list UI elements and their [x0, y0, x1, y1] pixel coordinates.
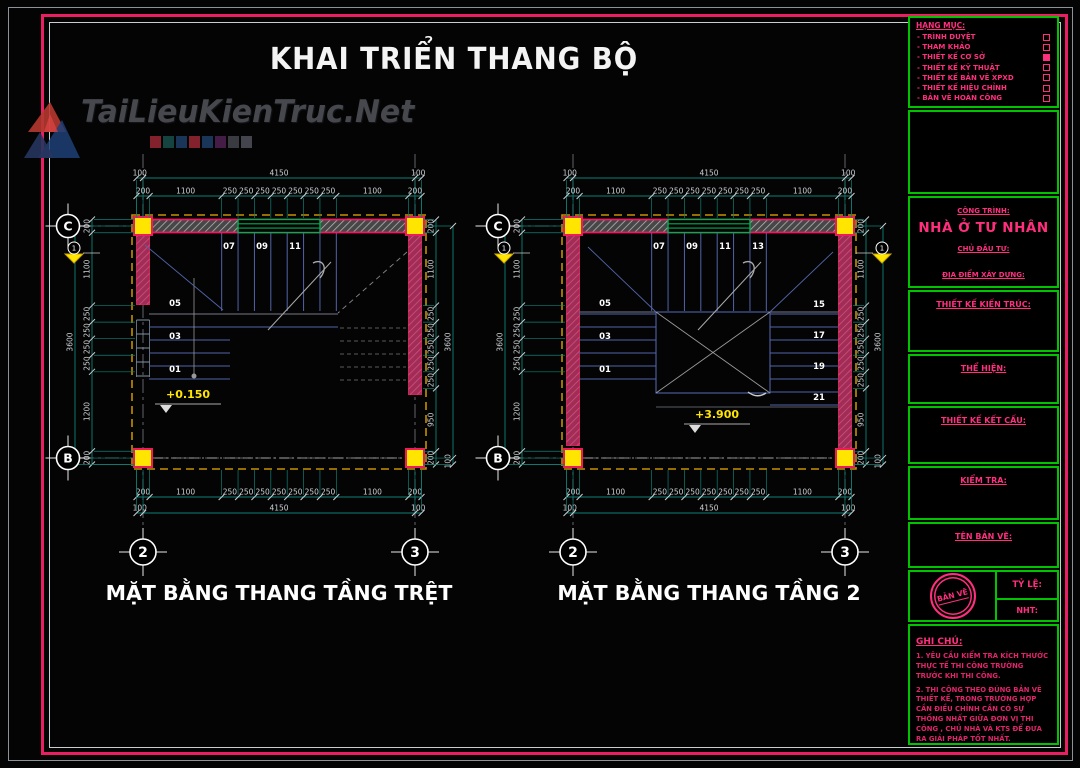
structure-label: THIẾT KẾ KẾT CẤU: [941, 416, 1026, 425]
svg-text:250: 250 [857, 356, 866, 371]
svg-text:13: 13 [752, 242, 764, 252]
project-name: NHÀ Ở TƯ NHÂN [918, 220, 1048, 236]
svg-text:250: 250 [857, 340, 866, 355]
checklist-header: HẠNG MỤC: [916, 21, 1051, 30]
svg-text:250: 250 [223, 488, 238, 497]
svg-text:250: 250 [735, 187, 750, 196]
nht-label: NHT: [997, 600, 1057, 620]
checklist-item-label: - THIẾT KẾ KỸ THUẬT [917, 64, 1000, 72]
svg-text:09: 09 [686, 242, 698, 252]
checklist-item: - THIẾT KẾ BẢN VẼ XPXD [917, 73, 1050, 83]
svg-text:250: 250 [653, 488, 668, 497]
svg-text:250: 250 [857, 323, 866, 338]
svg-text:250: 250 [513, 306, 522, 321]
svg-text:MẶT BẰNG THANG TẦNG 2: MẶT BẰNG THANG TẦNG 2 [557, 577, 860, 605]
svg-text:1100: 1100 [857, 259, 866, 278]
svg-text:07: 07 [653, 242, 665, 252]
svg-text:250: 250 [751, 488, 766, 497]
checklist-item: - THAM KHẢO [917, 42, 1050, 52]
svg-text:3600: 3600 [496, 332, 505, 351]
note-text: 1. YÊU CẦU KIỂM TRA KÍCH THƯỚC THỰC TẾ T… [916, 652, 1051, 682]
drawing-sheet: KHAI TRIỂN THANG BỘ 070911050301+0.15010… [0, 0, 1080, 768]
svg-text:250: 250 [321, 187, 336, 196]
svg-text:250: 250 [513, 323, 522, 338]
svg-text:250: 250 [751, 187, 766, 196]
svg-text:MẶT BẰNG THANG TẦNG TRỆT: MẶT BẰNG THANG TẦNG TRỆT [106, 577, 453, 605]
checkbox-icon [1043, 64, 1050, 71]
svg-text:250: 250 [83, 340, 92, 355]
svg-text:11: 11 [289, 242, 301, 252]
drawing-title: KHAI TRIỂN THANG BỘ [36, 42, 871, 77]
empty-box [908, 110, 1059, 194]
svg-text:3600: 3600 [444, 332, 453, 351]
svg-text:4150: 4150 [269, 169, 288, 178]
svg-text:05: 05 [599, 299, 611, 309]
svg-text:1100: 1100 [83, 259, 92, 278]
svg-text:250: 250 [239, 488, 254, 497]
svg-text:250: 250 [83, 306, 92, 321]
svg-text:250: 250 [685, 187, 700, 196]
svg-text:250: 250 [288, 488, 303, 497]
svg-text:1100: 1100 [793, 187, 812, 196]
check-box: KIỂM TRA: [908, 466, 1059, 520]
svg-text:250: 250 [857, 373, 866, 388]
svg-text:250: 250 [427, 356, 436, 371]
svg-text:250: 250 [653, 187, 668, 196]
svg-text:2: 2 [138, 545, 148, 561]
note-text: 2. THI CÔNG THEO ĐÚNG BẢN VẼ THIẾT KẾ, T… [916, 686, 1051, 745]
svg-text:250: 250 [718, 488, 733, 497]
checklist-item-label: - TRÌNH DUYỆT [917, 33, 975, 41]
svg-text:1100: 1100 [606, 187, 625, 196]
stamp-text: BẢN VẼ [936, 587, 969, 605]
svg-text:250: 250 [255, 187, 270, 196]
checklist-item: - THIẾT KẾ CƠ SỞ [917, 52, 1050, 62]
svg-text:1: 1 [502, 245, 506, 253]
svg-text:250: 250 [83, 323, 92, 338]
svg-text:07: 07 [223, 242, 235, 252]
svg-text:1100: 1100 [363, 187, 382, 196]
drawn-box: THỂ HIỆN: [908, 354, 1059, 404]
architect-box: THIẾT KẾ KIẾN TRÚC: [908, 290, 1059, 352]
checkbox-icon [1043, 54, 1050, 61]
svg-text:250: 250 [427, 306, 436, 321]
checkbox-icon [1043, 85, 1050, 92]
svg-text:950: 950 [857, 412, 866, 427]
svg-text:1: 1 [880, 245, 884, 253]
svg-text:+0.150: +0.150 [166, 388, 210, 401]
checklist-item-label: - THIẾT KẾ CƠ SỞ [917, 53, 985, 61]
checklist-item: - TRÌNH DUYỆT [917, 32, 1050, 42]
svg-text:1100: 1100 [793, 488, 812, 497]
svg-text:250: 250 [427, 373, 436, 388]
svg-text:19: 19 [813, 362, 825, 372]
svg-text:250: 250 [272, 187, 287, 196]
svg-text:250: 250 [669, 187, 684, 196]
svg-text:03: 03 [599, 332, 611, 342]
svg-text:250: 250 [702, 187, 717, 196]
svg-text:250: 250 [685, 488, 700, 497]
svg-text:250: 250 [735, 488, 750, 497]
svg-text:250: 250 [223, 187, 238, 196]
svg-text:+3.900: +3.900 [695, 408, 739, 421]
svg-text:1100: 1100 [606, 488, 625, 497]
svg-text:1100: 1100 [513, 259, 522, 278]
svg-text:250: 250 [255, 488, 270, 497]
checklist-item-label: - THIẾT KẾ BẢN VẼ XPXD [917, 74, 1014, 82]
svg-text:250: 250 [305, 488, 320, 497]
notes-header: GHI CHÚ: [916, 637, 962, 647]
svg-text:C: C [493, 219, 502, 234]
svg-text:1100: 1100 [427, 259, 436, 278]
owner-label: CHỦ ĐẦU TƯ: [958, 245, 1010, 253]
stair-plan-level-2: 0709111305030115171921+3.900100415010020… [478, 148, 908, 618]
drawn-label: THỂ HIỆN: [961, 364, 1006, 373]
svg-text:250: 250 [669, 488, 684, 497]
svg-text:03: 03 [169, 332, 181, 342]
checklist-box: HẠNG MỤC: - TRÌNH DUYỆT- THAM KHẢO- THIẾ… [908, 16, 1059, 108]
svg-text:250: 250 [305, 187, 320, 196]
architect-label: THIẾT KẾ KIẾN TRÚC: [936, 300, 1031, 309]
svg-text:1100: 1100 [176, 187, 195, 196]
checklist-item: - THIẾT KẾ HIỆU CHỈNH [917, 83, 1050, 93]
svg-text:15: 15 [813, 300, 825, 310]
svg-text:1200: 1200 [513, 402, 522, 421]
location-label: ĐỊA ĐIỂM XÂY DỰNG: [942, 271, 1025, 279]
checklist-item: - THIẾT KẾ KỸ THUẬT [917, 63, 1050, 73]
svg-text:4150: 4150 [269, 504, 288, 513]
svg-text:3: 3 [840, 545, 850, 561]
project-box: CÔNG TRÌNH: NHÀ Ở TƯ NHÂN CHỦ ĐẦU TƯ: ĐỊ… [908, 196, 1059, 288]
stamp-scale-box: BẢN VẼ TỶ LỆ: NHT: [908, 570, 1059, 622]
svg-text:01: 01 [599, 365, 611, 375]
svg-text:250: 250 [83, 356, 92, 371]
svg-text:3600: 3600 [874, 332, 883, 351]
checkbox-icon [1043, 74, 1050, 81]
stair-plan-ground-floor: 070911050301+0.1501004150100200110025025… [48, 148, 478, 618]
drawing-stamp-icon: BẢN VẼ [930, 573, 976, 619]
svg-text:250: 250 [288, 187, 303, 196]
svg-text:250: 250 [272, 488, 287, 497]
check-label: KIỂM TRA: [960, 476, 1007, 485]
drawing-name-label: TÊN BẢN VẼ: [955, 532, 1012, 541]
svg-text:05: 05 [169, 299, 181, 309]
svg-text:01: 01 [169, 365, 181, 375]
checklist-item-label: - THAM KHẢO [917, 43, 970, 51]
svg-text:250: 250 [513, 340, 522, 355]
svg-text:250: 250 [427, 323, 436, 338]
svg-text:250: 250 [702, 488, 717, 497]
checkbox-icon [1043, 44, 1050, 51]
svg-text:250: 250 [513, 356, 522, 371]
svg-text:1200: 1200 [83, 402, 92, 421]
notes-box: GHI CHÚ: 1. YÊU CẦU KIỂM TRA KÍCH THƯỚC … [908, 624, 1059, 745]
svg-text:3: 3 [410, 545, 420, 561]
svg-text:11: 11 [719, 242, 731, 252]
svg-text:250: 250 [321, 488, 336, 497]
svg-text:09: 09 [256, 242, 268, 252]
svg-text:1100: 1100 [363, 488, 382, 497]
checklist-item-label: - THIẾT KẾ HIỆU CHỈNH [917, 84, 1007, 92]
drawing-name-box: TÊN BẢN VẼ: [908, 522, 1059, 568]
svg-text:250: 250 [857, 306, 866, 321]
svg-text:1100: 1100 [176, 488, 195, 497]
svg-text:950: 950 [427, 412, 436, 427]
svg-text:2: 2 [568, 545, 578, 561]
svg-text:4150: 4150 [699, 169, 718, 178]
svg-text:B: B [493, 451, 503, 466]
title-block: HẠNG MỤC: - TRÌNH DUYỆT- THAM KHẢO- THIẾ… [908, 16, 1059, 745]
checkbox-icon [1043, 34, 1050, 41]
svg-text:21: 21 [813, 393, 825, 403]
svg-text:250: 250 [427, 340, 436, 355]
svg-text:1: 1 [72, 245, 76, 253]
scale-label: TỶ LỆ: [997, 572, 1057, 600]
svg-text:3600: 3600 [66, 332, 75, 351]
checklist-item-label: - BẢN VẼ HOÀN CÔNG [917, 94, 1002, 102]
svg-text:B: B [63, 451, 73, 466]
checkbox-icon [1043, 95, 1050, 102]
structure-box: THIẾT KẾ KẾT CẤU: [908, 406, 1059, 464]
checklist-item: - BẢN VẼ HOÀN CÔNG [917, 93, 1050, 103]
svg-text:17: 17 [813, 331, 825, 341]
svg-text:C: C [63, 219, 72, 234]
svg-text:250: 250 [239, 187, 254, 196]
svg-text:250: 250 [718, 187, 733, 196]
svg-text:4150: 4150 [699, 504, 718, 513]
project-label: CÔNG TRÌNH: [957, 207, 1009, 215]
